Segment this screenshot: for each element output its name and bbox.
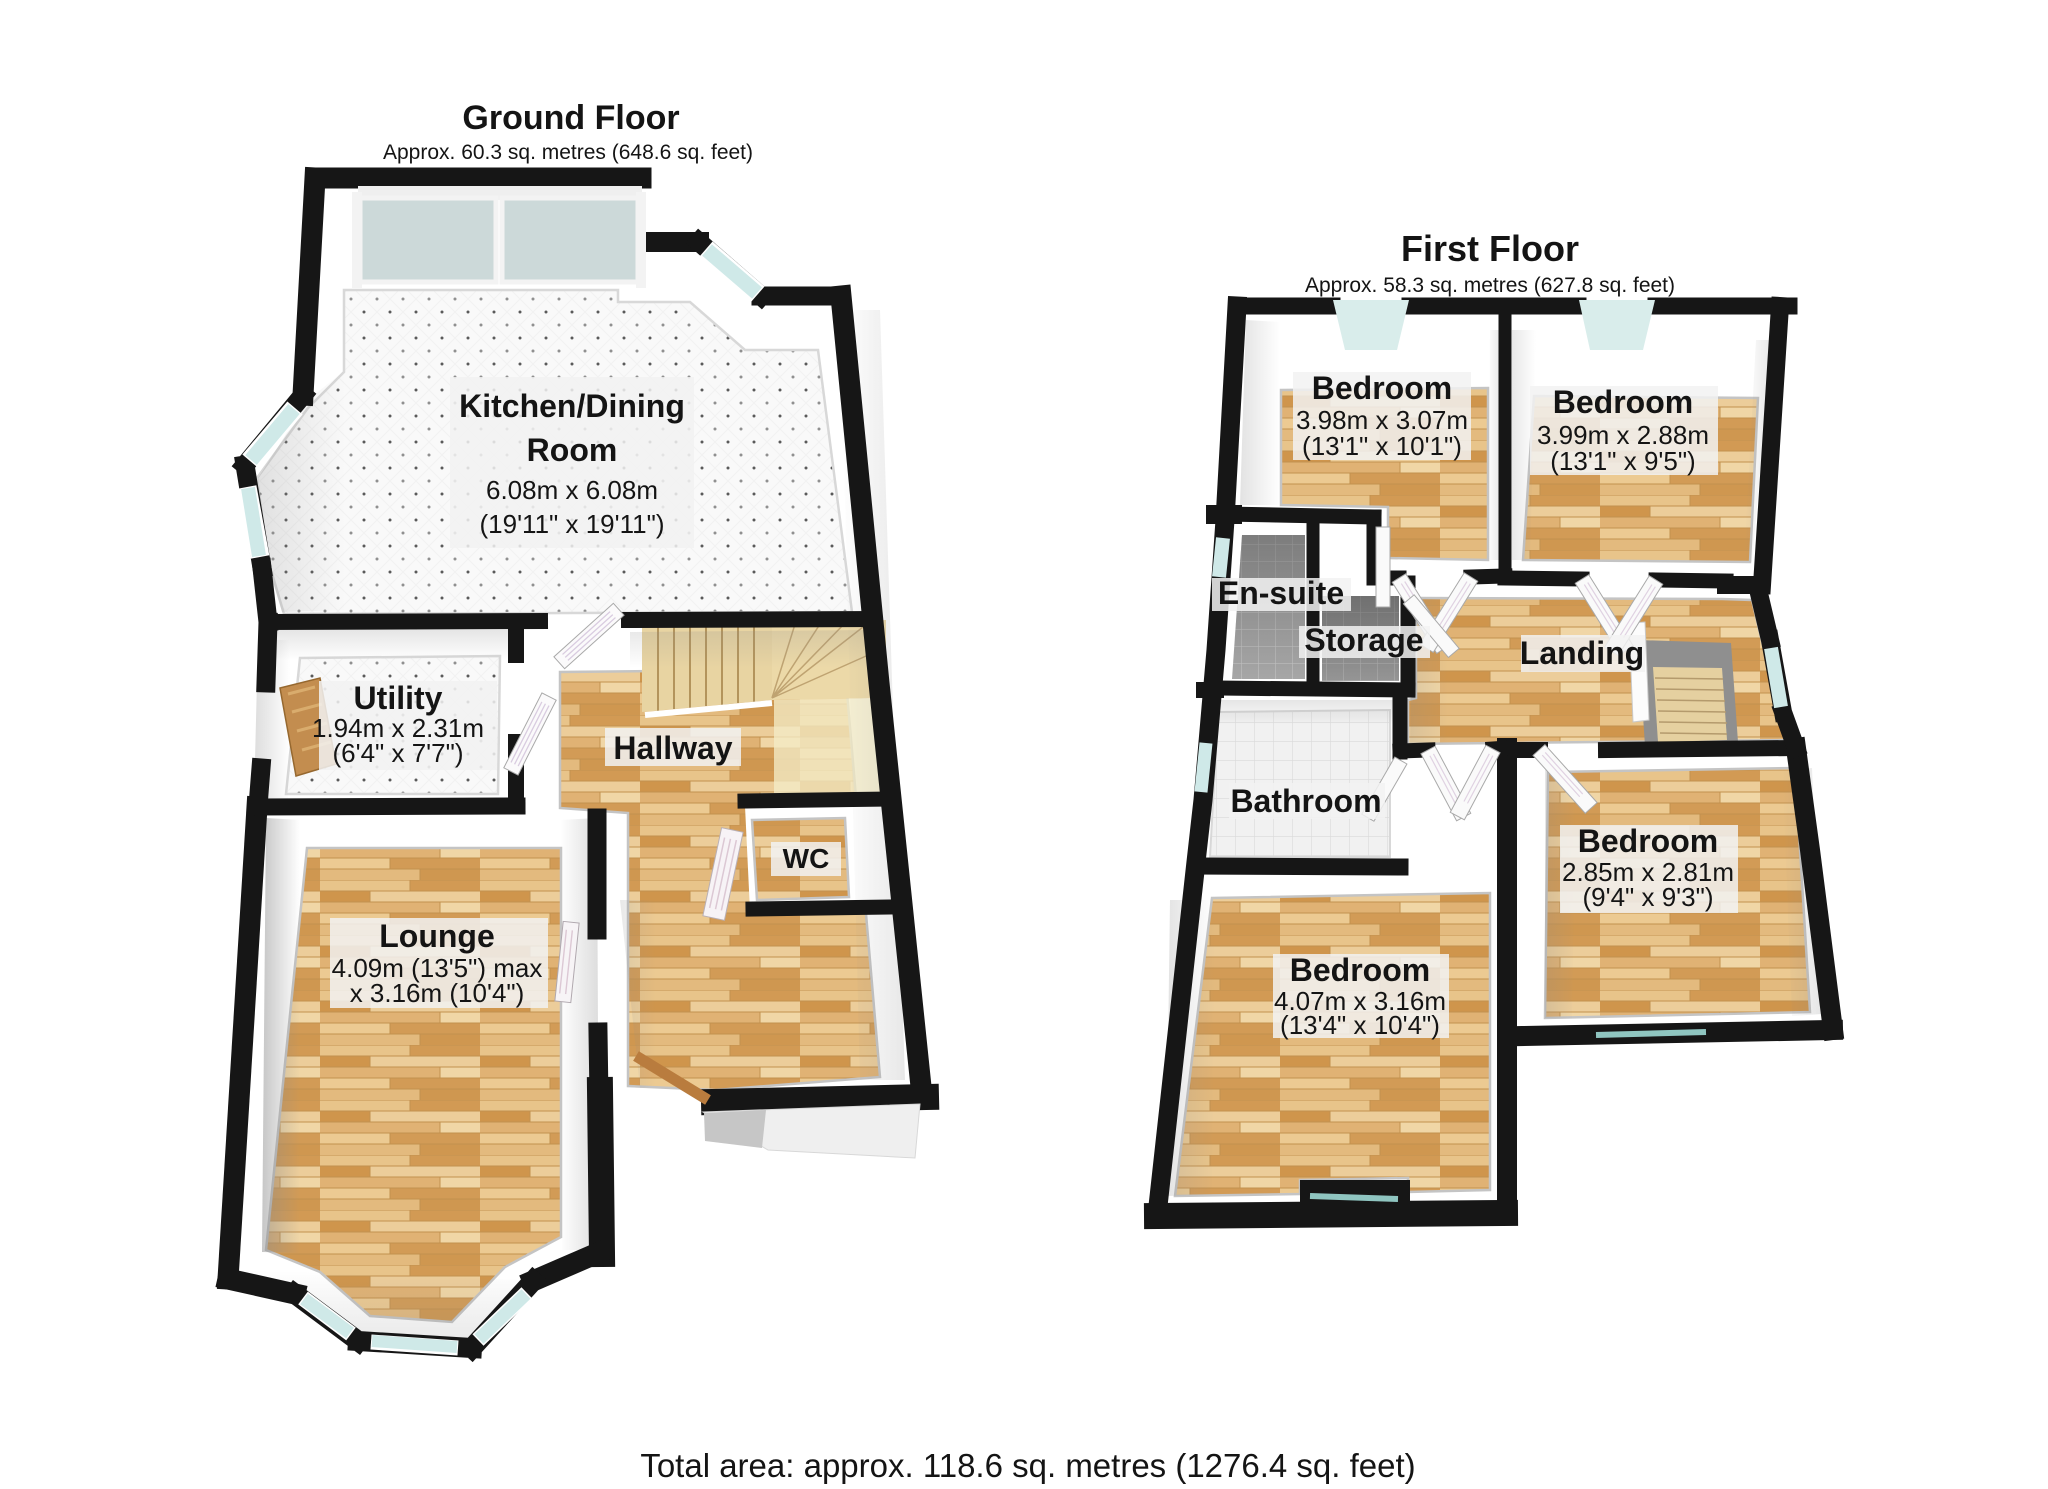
svg-text:Lounge: Lounge — [379, 918, 495, 954]
svg-text:6.08m x 6.08m: 6.08m x 6.08m — [486, 475, 658, 505]
svg-text:Total area: approx. 118.6 sq.: Total area: approx. 118.6 sq. metres (12… — [640, 1447, 1415, 1484]
svg-text:First Floor: First Floor — [1401, 228, 1579, 269]
svg-text:Kitchen/Dining: Kitchen/Dining — [459, 388, 685, 424]
svg-text:Hallway: Hallway — [613, 730, 732, 766]
svg-text:Bedroom: Bedroom — [1312, 370, 1452, 406]
svg-text:Bedroom: Bedroom — [1553, 384, 1693, 420]
svg-text:(19'11" x 19'11"): (19'11" x 19'11") — [480, 509, 665, 539]
svg-text:x 3.16m (10'4"): x 3.16m (10'4") — [350, 978, 525, 1008]
svg-text:Approx. 58.3 sq. metres (627.8: Approx. 58.3 sq. metres (627.8 sq. feet) — [1305, 274, 1675, 297]
svg-text:(6'4" x 7'7"): (6'4" x 7'7") — [333, 738, 464, 768]
svg-text:Room: Room — [527, 432, 618, 468]
svg-text:Bathroom: Bathroom — [1230, 783, 1381, 819]
svg-text:WC: WC — [783, 843, 830, 874]
svg-text:Approx. 60.3 sq. metres (648.6: Approx. 60.3 sq. metres (648.6 sq. feet) — [383, 141, 753, 164]
svg-text:(9'4" x 9'3"): (9'4" x 9'3") — [1583, 882, 1714, 912]
svg-text:Storage: Storage — [1304, 622, 1423, 658]
svg-text:Bedroom: Bedroom — [1290, 952, 1430, 988]
svg-text:Ground Floor: Ground Floor — [462, 99, 679, 137]
svg-text:En-suite: En-suite — [1218, 575, 1344, 611]
svg-text:(13'1" x 10'1"): (13'1" x 10'1") — [1302, 431, 1462, 461]
svg-text:Bedroom: Bedroom — [1578, 823, 1718, 859]
svg-text:(13'4" x 10'4"): (13'4" x 10'4") — [1280, 1010, 1440, 1040]
svg-text:Utility: Utility — [354, 680, 443, 716]
svg-text:Landing: Landing — [1520, 635, 1644, 671]
svg-text:(13'1" x 9'5"): (13'1" x 9'5") — [1550, 446, 1695, 476]
